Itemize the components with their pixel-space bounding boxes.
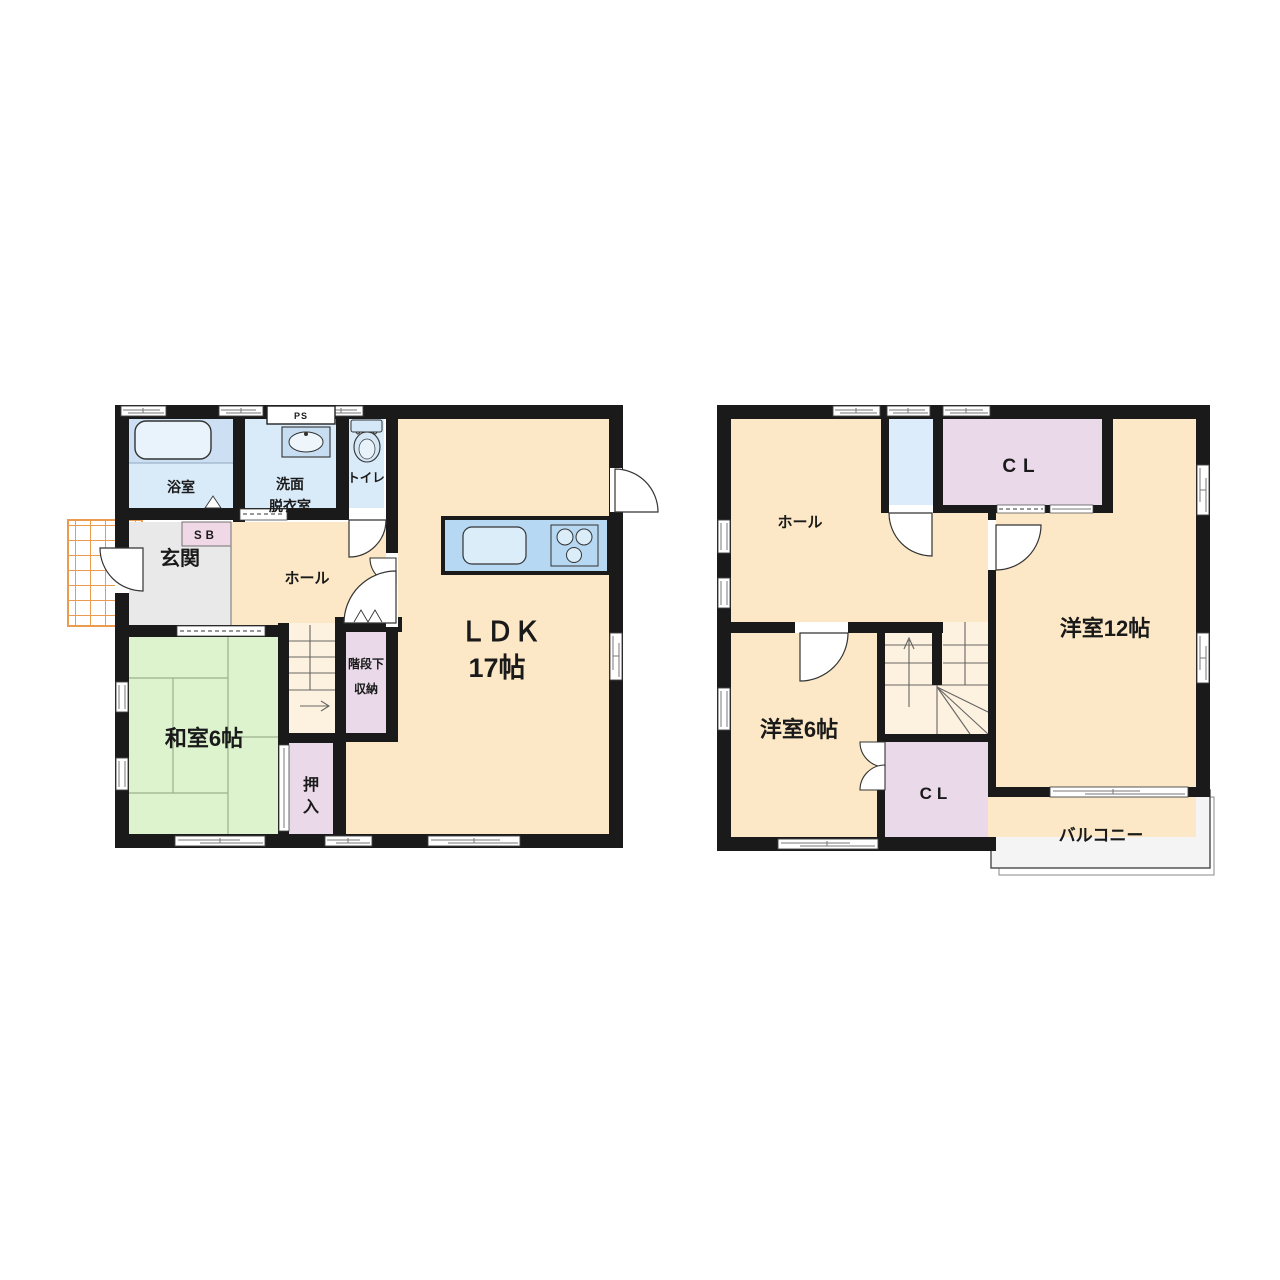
room-label-ldk-2: 17帖	[468, 653, 525, 683]
wall	[129, 508, 348, 520]
window	[116, 682, 128, 712]
shoe-box-label: SB	[194, 530, 218, 542]
room-label-western12: 洋室12帖	[1060, 616, 1150, 641]
room-label-closet-bottom: CL	[920, 784, 953, 803]
room-label-hall-1f: ホール	[284, 570, 329, 587]
floor2-sliding-doors	[997, 505, 1093, 513]
room-ldk-extension	[346, 742, 398, 834]
wall	[386, 627, 398, 742]
window	[718, 578, 730, 608]
room-label-japanese: 和室6帖	[165, 726, 243, 751]
wall	[336, 419, 349, 520]
wall	[717, 405, 731, 851]
wall	[933, 419, 943, 513]
wall	[115, 405, 623, 419]
wall	[1102, 419, 1113, 513]
pipe-space: PS	[267, 406, 335, 424]
room-label-ldk-1: ＬＤＫ	[460, 617, 541, 647]
door-opening	[795, 622, 848, 633]
bathtub-icon	[135, 421, 211, 459]
ps-label: PS	[294, 411, 308, 421]
room-label-understair-1: 階段下	[348, 656, 384, 671]
wall	[881, 419, 889, 513]
wall	[233, 419, 245, 522]
window	[778, 839, 878, 849]
room-wc-2f	[889, 419, 933, 513]
floorplan-page: PS 浴室 洗面 脱衣室 トイレ SB 玄関 ホール ＬＤＫ 17帖 階段下 収…	[0, 0, 1280, 1280]
wall	[386, 419, 398, 553]
room-label-understair-2: 収納	[354, 681, 378, 696]
door-opening	[349, 508, 386, 520]
floor1-plan: PS 浴室 洗面 脱衣室 トイレ SB 玄関 ホール ＬＤＫ 17帖 階段下 収…	[68, 405, 658, 848]
floorplan-drawing: PS 浴室 洗面 脱衣室 トイレ SB 玄関 ホール ＬＤＫ 17帖 階段下 収…	[0, 0, 1280, 1280]
room-label-washroom-2: 脱衣室	[269, 498, 311, 514]
wall	[346, 733, 398, 742]
wall	[335, 623, 346, 742]
floor2-plan: ホール CL 洋室12帖 洋室6帖 CL バルコニー	[717, 405, 1214, 875]
wall	[877, 622, 885, 837]
balcony-sliding-window	[1050, 787, 1188, 797]
room-label-oshiire-1: 押	[303, 775, 319, 794]
room-label-oshiire-2: 入	[303, 798, 319, 816]
kitchen-counter-icon	[443, 518, 609, 573]
room-label-bath: 浴室	[167, 479, 195, 495]
room-label-entrance: 玄関	[160, 546, 200, 570]
room-label-washroom-1: 洗面	[276, 476, 304, 492]
window	[116, 758, 128, 790]
wall	[1196, 405, 1210, 797]
door-opening	[889, 505, 933, 513]
door-opening	[988, 520, 996, 570]
room-label-hall-2f: ホール	[777, 514, 822, 531]
sink-icon	[282, 427, 330, 457]
window	[718, 520, 730, 553]
room-label-closet-top: CL	[1002, 456, 1041, 477]
wall	[932, 633, 942, 685]
wall	[278, 733, 346, 743]
room-label-balcony: バルコニー	[1059, 826, 1144, 845]
stairs-area-1f	[289, 623, 335, 733]
window	[718, 688, 730, 730]
wall	[333, 743, 346, 834]
room-label-western6: 洋室6帖	[760, 717, 838, 742]
room-label-toilet: トイレ	[347, 471, 385, 485]
wall	[877, 734, 996, 742]
ldk-exterior-door-arc	[615, 469, 658, 512]
